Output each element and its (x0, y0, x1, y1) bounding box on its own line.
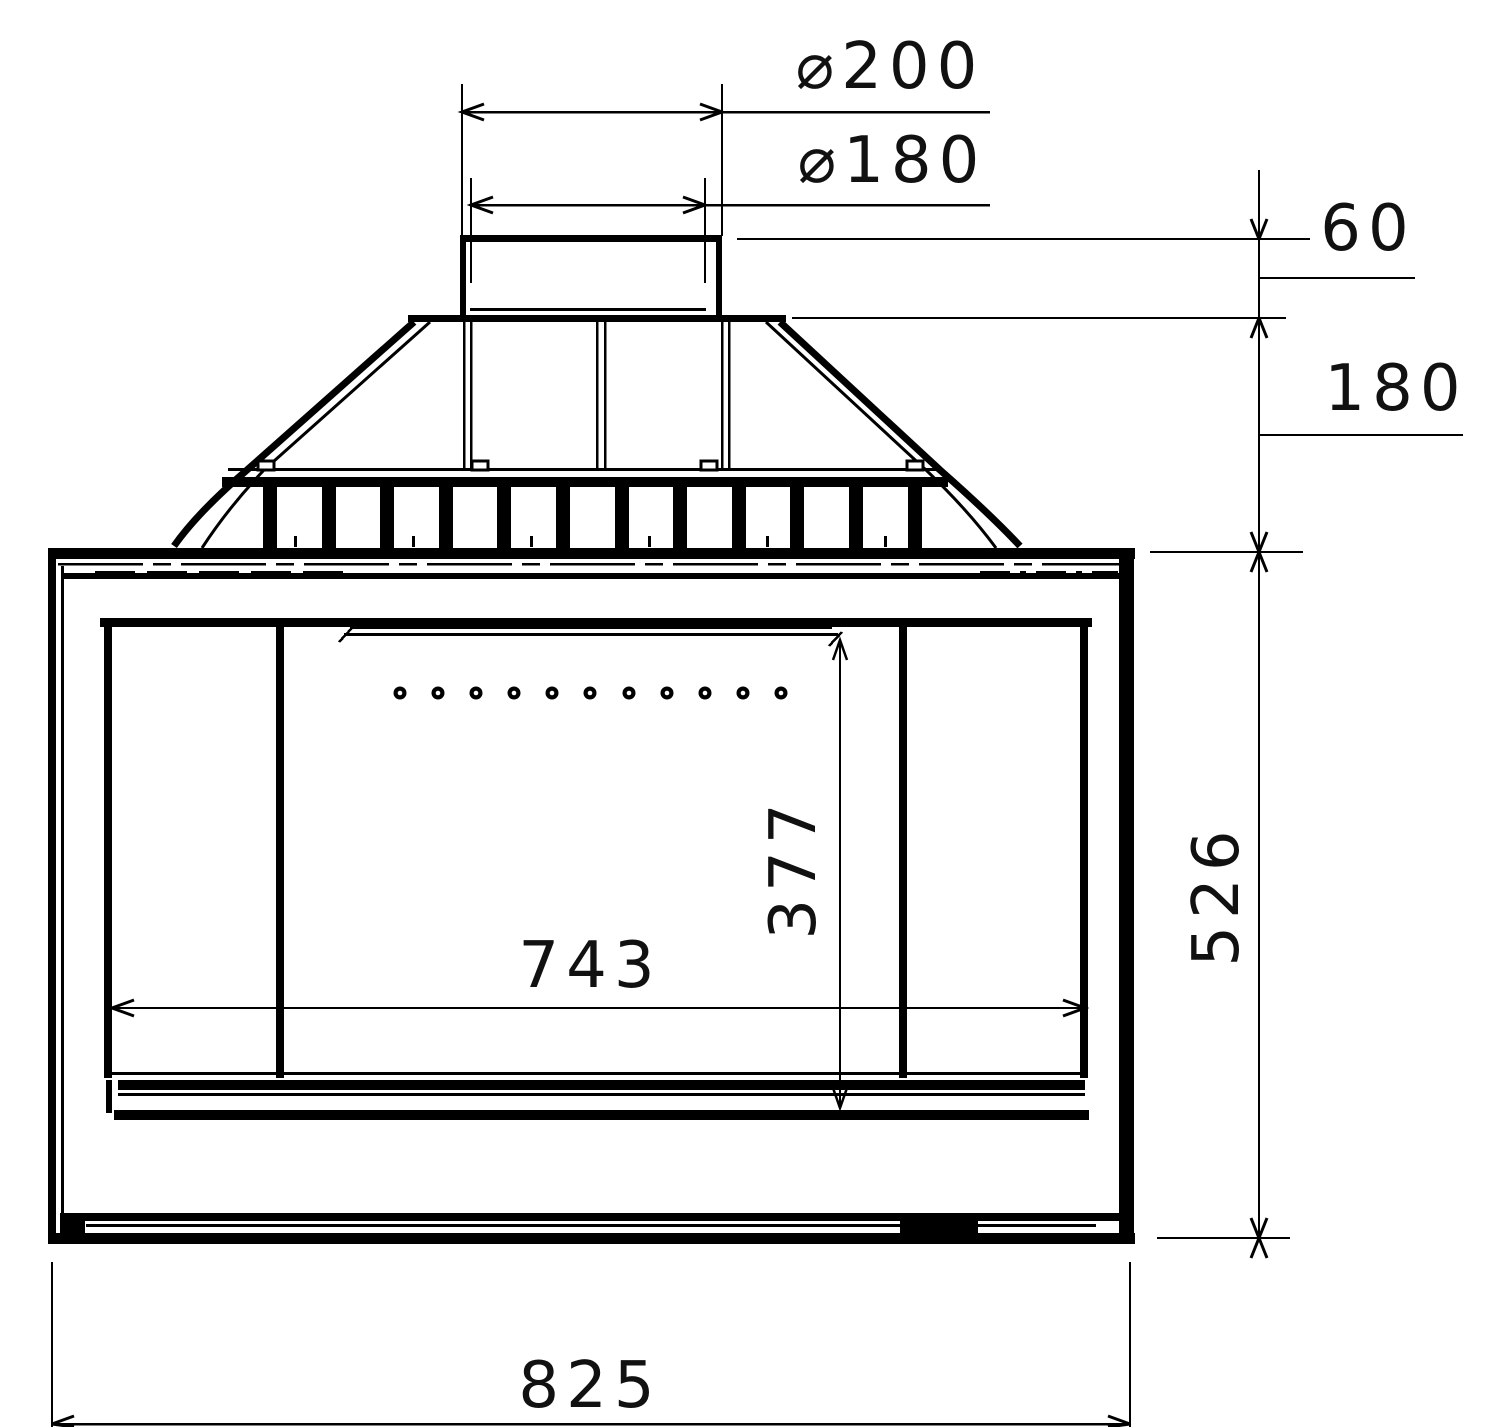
dim-flue-inner: ⌀180 (470, 124, 990, 283)
hood-left-slope-outer (174, 322, 414, 546)
dimension-line (839, 640, 841, 1108)
technical-drawing-page: ⌀200 ⌀180 (0, 0, 1500, 1427)
body-top-extension-line (1150, 551, 1303, 553)
grille-base-plate (222, 468, 948, 487)
body-bottom-extension-line (1157, 1237, 1290, 1239)
right-mullion (899, 627, 907, 1078)
left-wall-inner (61, 566, 64, 1216)
fireplace-insert-front-view: ⌀200 ⌀180 (0, 0, 1500, 1427)
dim-label-flue-outer: ⌀200 (796, 30, 985, 104)
dim-overall-width: 825 (51, 1262, 1131, 1427)
floor-line (114, 1110, 1089, 1120)
base-block-left (60, 1213, 85, 1235)
collar-left-side (460, 235, 466, 320)
collar-top-extension-line (737, 238, 1310, 240)
dim-label-overall-width: 825 (518, 1349, 661, 1423)
door-lintel-lower-line (344, 633, 838, 636)
hood-top-extension-line (792, 317, 1286, 319)
dim-label-glass-width: 743 (518, 929, 661, 1003)
leader-line-180 (1259, 434, 1463, 436)
dimension-line (112, 1007, 1085, 1009)
dim-label-body-height: 526 (1180, 823, 1254, 966)
flue-duct-seams (463, 322, 731, 468)
opening-left-jamb (104, 627, 112, 1078)
dim-label-glass-height: 377 (757, 796, 831, 939)
dim-glass-width: 743 (112, 929, 1085, 1016)
body-shell (48, 548, 1135, 1244)
collar-right-side (716, 235, 722, 320)
top-plate (48, 548, 1135, 559)
extension-line (721, 84, 723, 236)
sill-lower-line (118, 1093, 1085, 1096)
leader-line-60 (1259, 277, 1415, 279)
base-block-right (900, 1213, 978, 1233)
hood-left-slope-inner (202, 322, 430, 548)
convection-hood (174, 315, 1020, 548)
dim-label-flue-inner: ⌀180 (798, 124, 987, 198)
sill-thick-line (118, 1080, 1085, 1090)
dimension-line (462, 111, 990, 114)
collar-inner-line (470, 308, 706, 311)
extension-line (704, 178, 706, 283)
left-mullion (276, 627, 284, 1078)
left-wall-outer (48, 556, 56, 1244)
extension-line-right (1129, 1262, 1131, 1427)
grille-slats (263, 487, 922, 550)
base-bottom-line (48, 1233, 1135, 1244)
collar-top-line (460, 235, 722, 242)
extension-line-left (51, 1262, 53, 1427)
door-lintel (350, 620, 832, 629)
hood-top-line (408, 315, 786, 322)
extension-line (470, 178, 472, 283)
sill-top-line (112, 1072, 1085, 1075)
vertical-dimension-line (1258, 170, 1260, 1240)
firebox-opening (100, 618, 1092, 1120)
dimension-line (52, 1423, 1130, 1426)
dimension-line (471, 204, 990, 207)
sill-left-hook (106, 1080, 112, 1113)
dim-glass-height: 377 (757, 640, 847, 1108)
dim-label-hood-height: 180 (1324, 352, 1467, 426)
arrowhead-right (1108, 1416, 1130, 1427)
flue-collar (460, 235, 722, 320)
hood-right-slope-outer (780, 322, 1020, 546)
right-wall (1119, 558, 1134, 1244)
arrowhead-left (52, 1416, 74, 1427)
air-holes-row (394, 687, 788, 700)
extension-line (461, 84, 463, 236)
inner-frame-top (63, 573, 1121, 579)
dim-label-collar-height: 60 (1320, 192, 1415, 266)
